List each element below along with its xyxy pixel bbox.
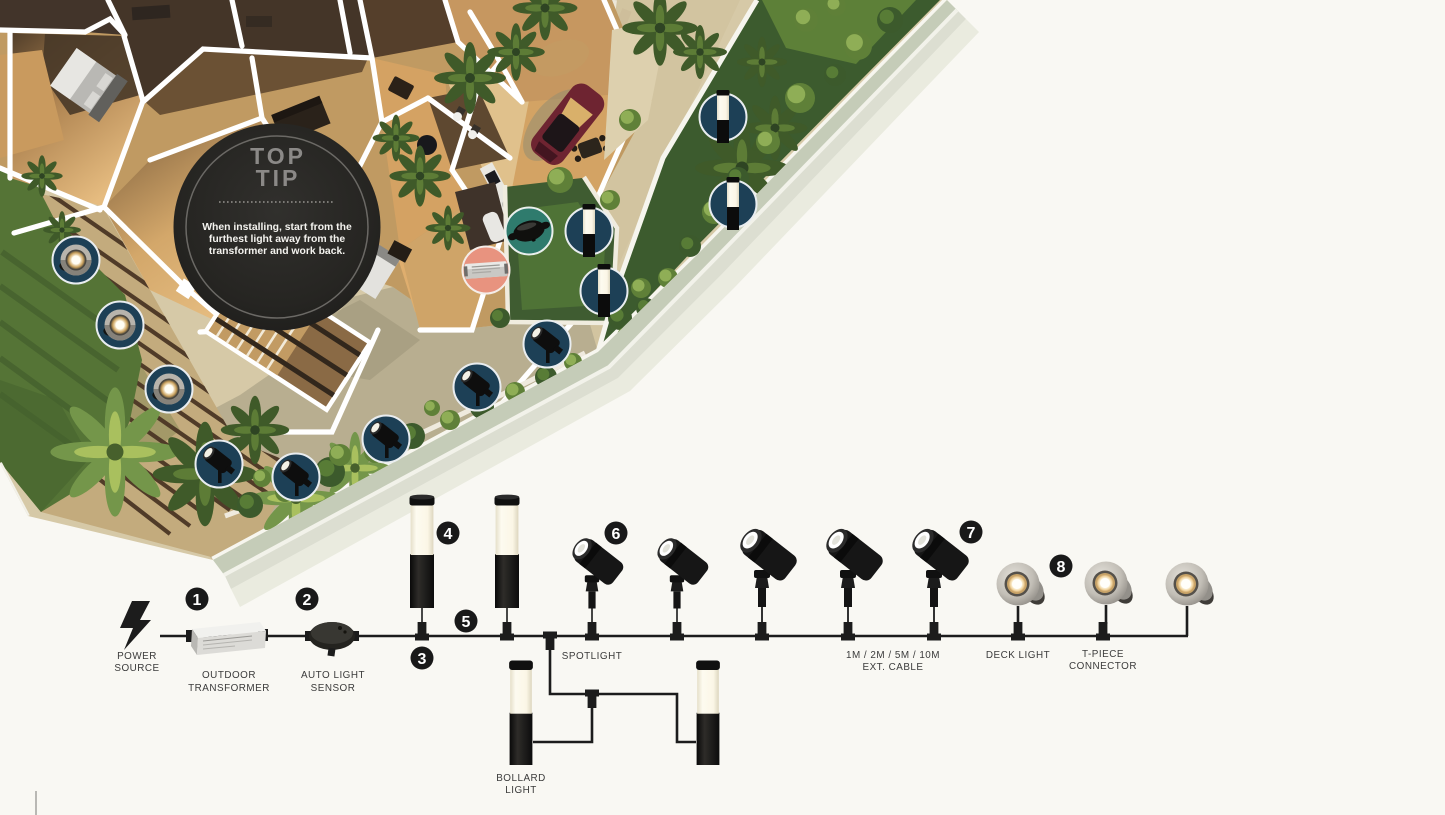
- svg-text:SPOTLIGHT: SPOTLIGHT: [562, 651, 622, 662]
- svg-text:When installing, start from th: When installing, start from the: [202, 222, 352, 233]
- svg-text:transformer and work back.: transformer and work back.: [209, 246, 345, 257]
- svg-text:LIGHT: LIGHT: [505, 785, 537, 796]
- svg-text:5: 5: [462, 614, 471, 631]
- svg-text:POWER: POWER: [117, 651, 157, 662]
- svg-text:1M / 2M / 5M / 10M: 1M / 2M / 5M / 10M: [846, 650, 940, 661]
- svg-text:AUTO LIGHT: AUTO LIGHT: [301, 670, 365, 681]
- svg-text:7: 7: [967, 525, 976, 542]
- svg-text:SENSOR: SENSOR: [311, 683, 356, 694]
- svg-text:BOLLARD: BOLLARD: [496, 773, 546, 784]
- svg-text:TRANSFORMER: TRANSFORMER: [188, 683, 270, 694]
- svg-text:6: 6: [612, 526, 621, 543]
- svg-text:DECK LIGHT: DECK LIGHT: [986, 650, 1050, 661]
- svg-text:3: 3: [418, 651, 427, 668]
- svg-text:4: 4: [444, 526, 453, 543]
- svg-text:2: 2: [303, 592, 312, 609]
- svg-text:T-PIECE: T-PIECE: [1082, 649, 1124, 660]
- svg-text:8: 8: [1057, 559, 1066, 576]
- svg-text:CONNECTOR: CONNECTOR: [1069, 661, 1137, 672]
- svg-text:furthest light away from the: furthest light away from the: [209, 234, 345, 245]
- svg-text:EXT. CABLE: EXT. CABLE: [863, 662, 924, 673]
- svg-text:SOURCE: SOURCE: [114, 663, 159, 674]
- svg-text:1: 1: [193, 592, 202, 609]
- svg-text:OUTDOOR: OUTDOOR: [202, 670, 256, 681]
- svg-text:TIP: TIP: [256, 165, 301, 191]
